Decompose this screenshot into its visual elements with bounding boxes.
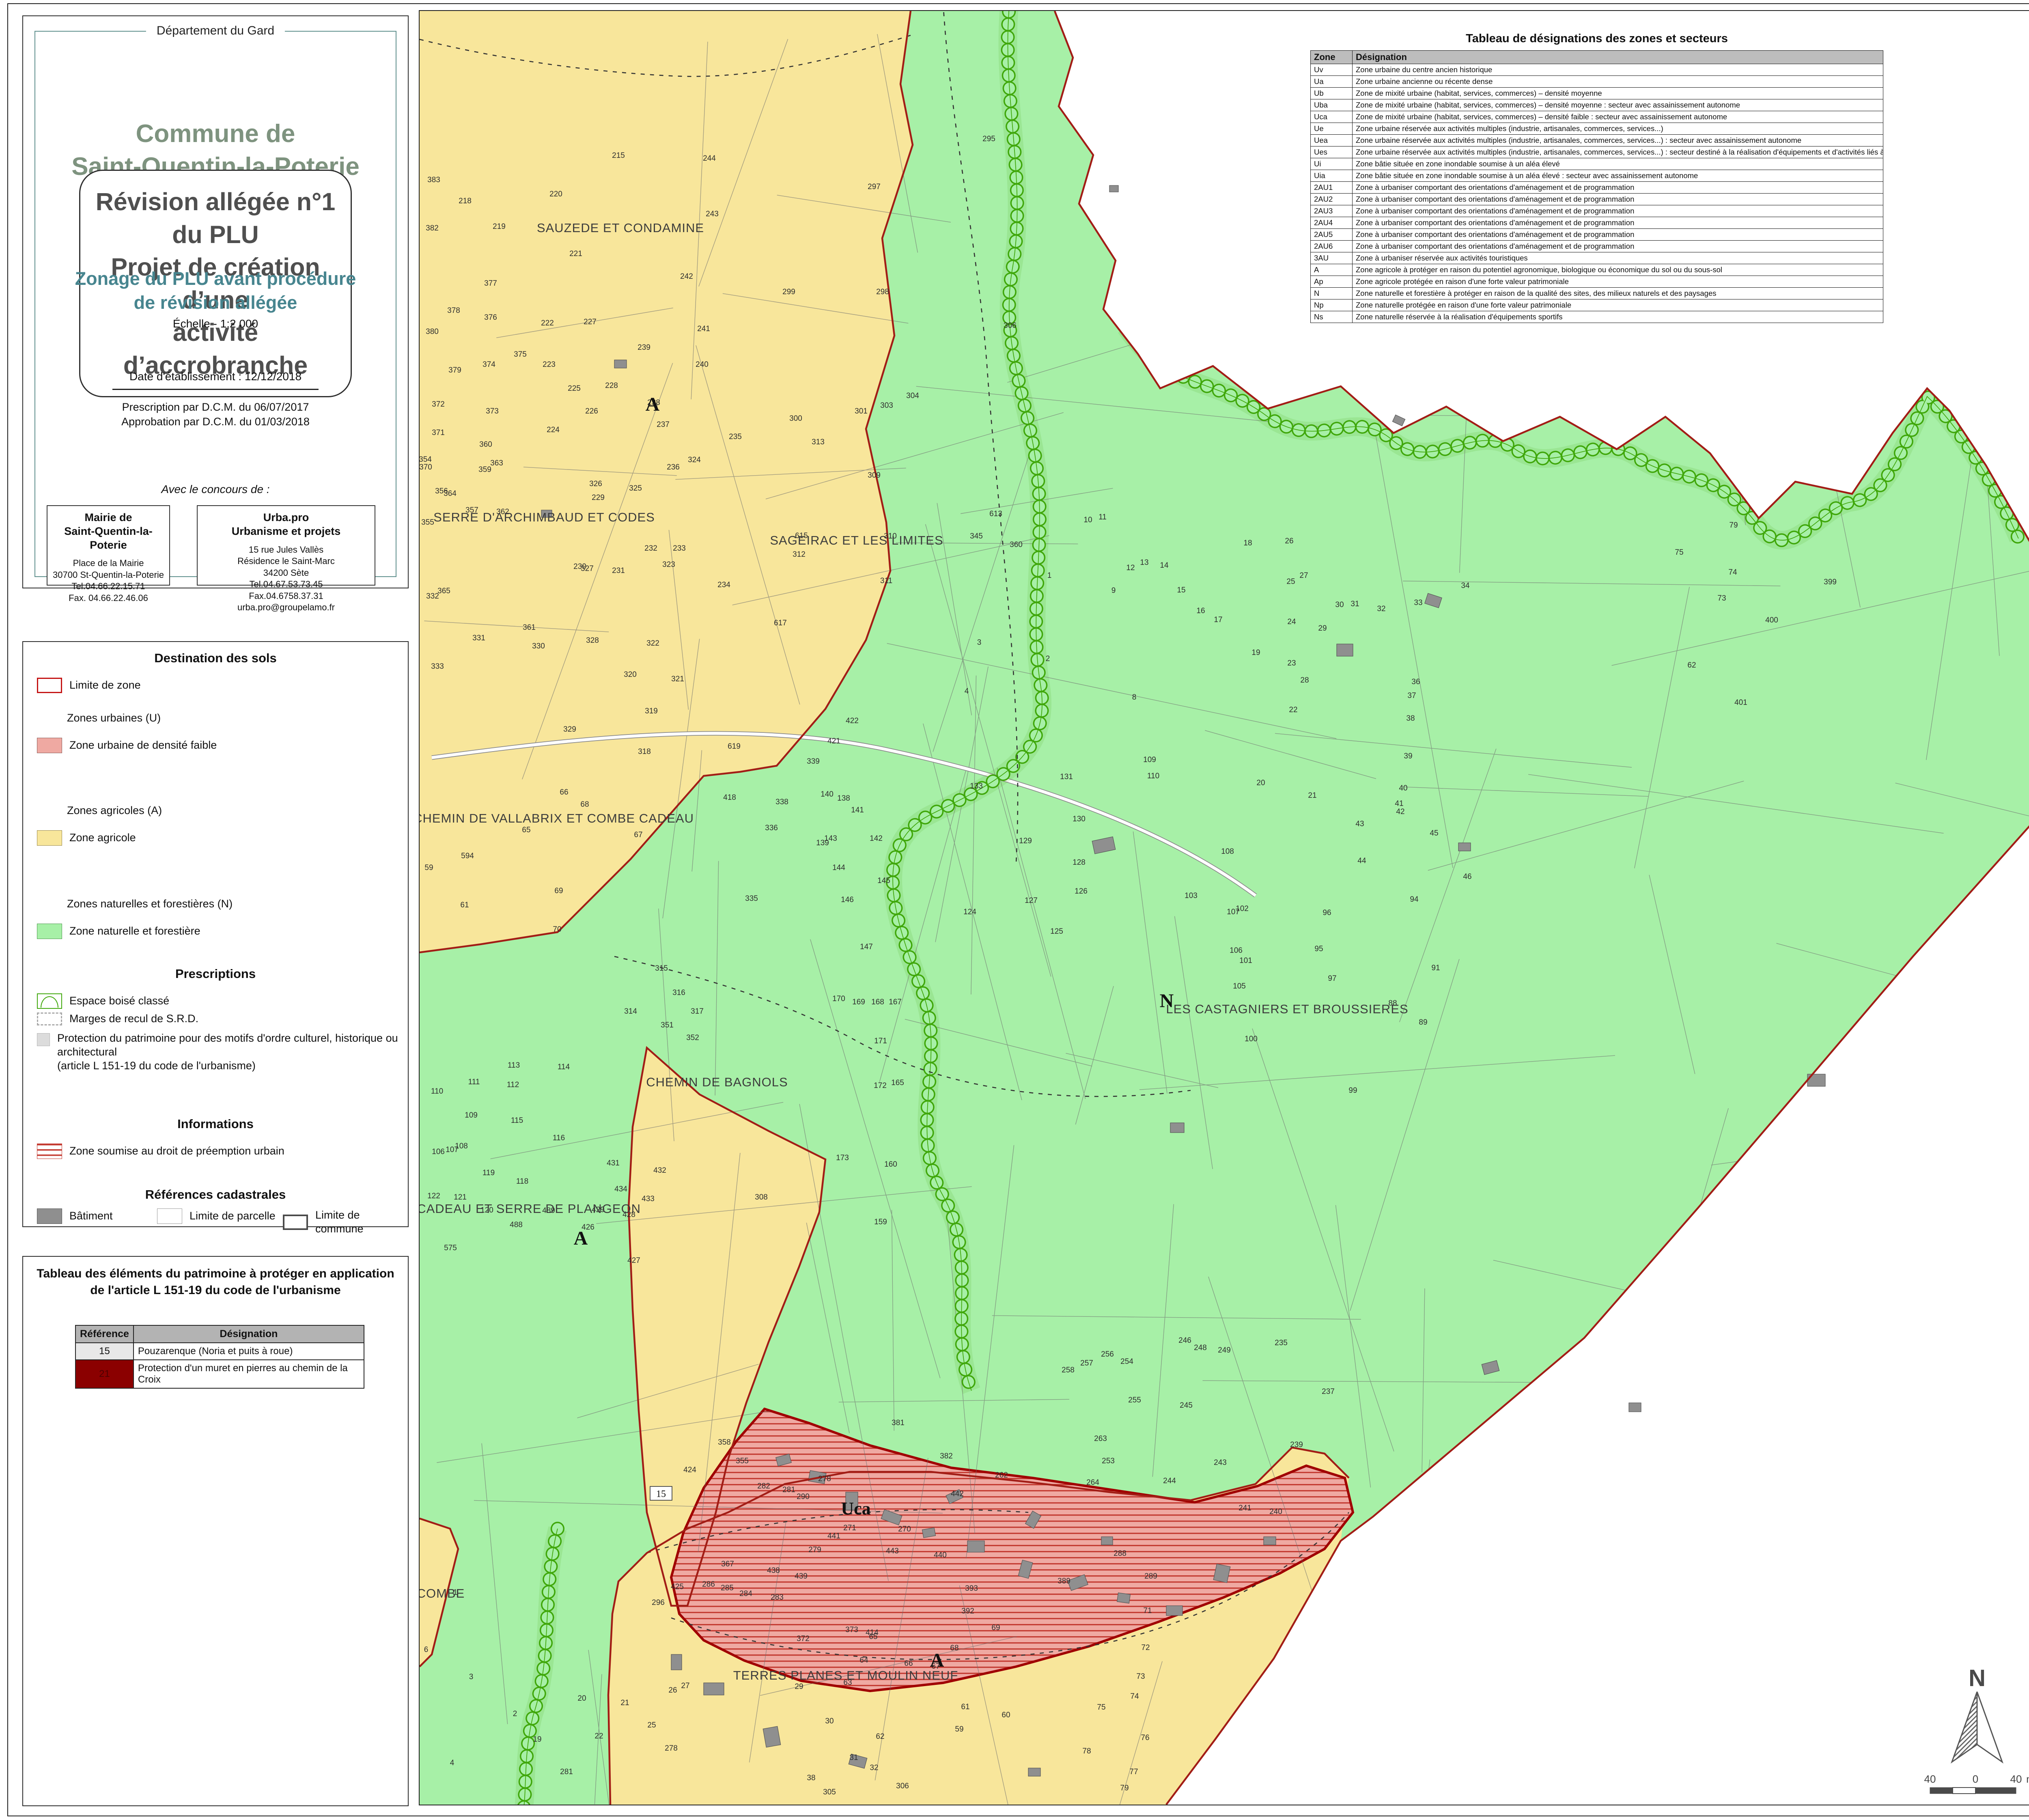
- parcel-label: 306: [896, 1782, 909, 1790]
- legend-item: Marges de recul de S.R.D.: [37, 1012, 400, 1026]
- legend-item-label: Espace boisé classé: [69, 994, 169, 1008]
- parcel-label: 314: [624, 1007, 637, 1016]
- zones-table-title: Tableau de désignations des zones et sec…: [1310, 32, 1883, 45]
- parcel-label: 112: [507, 1081, 519, 1089]
- parcel-label: 432: [653, 1166, 666, 1175]
- zones-table-row: UiZone bâtie située en zone inondable so…: [1311, 158, 1883, 170]
- parcel-label: 25: [1286, 577, 1295, 586]
- urba-address: 15 rue Jules VallèsRésidence le Saint-Ma…: [198, 544, 375, 614]
- parcel-label: 72: [1141, 1643, 1150, 1652]
- parcel-label: 20: [577, 1694, 586, 1703]
- zones-table-header: Désignation: [1353, 51, 1883, 64]
- parcel-label: 299: [782, 288, 795, 296]
- parcel-label: 59: [424, 864, 433, 872]
- zones-table-row: 2AU4Zone à urbaniser comportant des orie…: [1311, 217, 1883, 229]
- parcel-label: 130: [1073, 815, 1086, 823]
- parcel-label: 42: [1396, 808, 1404, 816]
- urba-name: Urba.pro Urbanisme et projets: [198, 511, 375, 538]
- parcel-label: 33: [1414, 599, 1422, 607]
- parcel-label: 25: [647, 1721, 656, 1730]
- parcel-label: 286: [702, 1580, 715, 1589]
- legend-item-label: Limite de zone: [69, 678, 141, 692]
- parcel-label: 281: [560, 1768, 573, 1776]
- parcel-label: 143: [824, 834, 837, 843]
- mairie-box: Mairie de Saint-Quentin-la- Poterie Plac…: [47, 505, 170, 586]
- parcel-label: 229: [592, 493, 605, 502]
- parcel-label: 64: [859, 1656, 868, 1665]
- parc-swatch: [157, 1208, 182, 1224]
- parcel-label: 381: [892, 1419, 905, 1427]
- zones-table: ZoneDésignation UvZone urbaine du centre…: [1310, 50, 1883, 323]
- parcel-label: 279: [808, 1546, 821, 1554]
- zone-designation: Zone urbaine réservée aux activités mult…: [1353, 146, 1883, 158]
- parcel-label: 36: [1411, 678, 1420, 686]
- parcel-label: 380: [426, 327, 439, 336]
- scale-bar-label: m: [2026, 1773, 2029, 1785]
- parcel-label: 298: [876, 288, 889, 296]
- parcel-label: 440: [934, 1551, 947, 1559]
- parcel-label: 316: [672, 989, 685, 997]
- parcel-label: 374: [482, 360, 495, 369]
- parcel-label: 225: [568, 384, 581, 393]
- parcel-label: 62: [876, 1732, 884, 1741]
- parcel-label: 129: [1019, 837, 1032, 845]
- parcel-label: 358: [718, 1438, 731, 1447]
- parcel-label: 31: [849, 1753, 858, 1762]
- parcel-label: 222: [541, 319, 554, 327]
- place-label: LA COMBE: [420, 1586, 465, 1600]
- parcel-label: 2: [513, 1710, 517, 1718]
- informations-title: Informations: [23, 1117, 408, 1131]
- parcel-label: 69: [554, 887, 563, 895]
- address-line: Place de la Mairie: [47, 558, 169, 569]
- parcel-label: 107: [446, 1146, 459, 1154]
- zones-table-row: UeaZone urbaine réservée aux activités m…: [1311, 135, 1883, 146]
- parcel-label: 219: [493, 222, 506, 231]
- legend-item: Zone naturelle et forestière: [37, 924, 400, 939]
- parcel-label: 74: [1130, 1692, 1139, 1701]
- zones-table-row: 2AU1Zone à urbaniser comportant des orie…: [1311, 182, 1883, 194]
- parcel-label: 418: [723, 793, 736, 802]
- scale-bar-label: 0: [1973, 1773, 1978, 1785]
- parcel-label: 226: [585, 407, 598, 416]
- zones-table-row: UiaZone bâtie située en zone inondable s…: [1311, 170, 1883, 182]
- parcel-label: 236: [667, 463, 680, 472]
- parcel-label: 235: [1275, 1339, 1288, 1347]
- zone-code: 2AU1: [1311, 182, 1353, 194]
- parcel-label: 18: [1243, 539, 1252, 547]
- parcel-label: 138: [837, 794, 850, 803]
- parcel-label: 111: [468, 1078, 480, 1086]
- legend-item-label: Zone naturelle et forestière: [69, 924, 200, 938]
- parcel-label: 108: [1221, 847, 1234, 856]
- zone-designation: Zone urbaine du centre ancien historique: [1353, 64, 1883, 76]
- plan-subtitle: Zonage du PLU avant procédure de révisio…: [23, 267, 408, 314]
- parcel-label: 248: [1194, 1344, 1207, 1352]
- parcel-label: 96: [1323, 909, 1331, 917]
- parcel-label: 114: [558, 1063, 570, 1071]
- srd-swatch: [37, 1012, 62, 1025]
- place-label: SERRE D'ARCHIMBAUD ET CODES: [433, 510, 655, 524]
- comm-swatch: [283, 1215, 308, 1230]
- parcel-label: 227: [584, 318, 597, 326]
- parcel-label: 22: [594, 1732, 603, 1740]
- parcel-label: 221: [569, 250, 582, 258]
- parcel-label: 121: [454, 1193, 467, 1202]
- parcel-label: 26: [1285, 537, 1293, 545]
- parcel-label: 338: [775, 798, 788, 806]
- parcel-label: 258: [1062, 1366, 1075, 1374]
- parcel-label: 253: [1102, 1457, 1115, 1465]
- legend-item-label: Limite de commune: [315, 1208, 408, 1236]
- parcel-label: 66: [904, 1659, 913, 1668]
- parcel-label: 431: [607, 1159, 620, 1167]
- parcel-label: 14: [1160, 561, 1169, 570]
- parcel-label: 34: [1461, 582, 1470, 590]
- parcel-label: 355: [421, 518, 434, 527]
- parcel-label: 66: [560, 788, 568, 797]
- parcel-label: 44: [1357, 857, 1366, 865]
- patrimoine-row: 21Protection d'un muret en pierres au ch…: [75, 1360, 364, 1388]
- parcel-label: 373: [486, 407, 499, 416]
- parcel-label: 332: [426, 592, 439, 601]
- parcel-label: 4: [450, 1759, 454, 1767]
- parcel-label: 321: [671, 675, 684, 683]
- parcel-label: 399: [1824, 578, 1837, 586]
- plan-sheet: Département du Gard Commune de Saint-Que…: [0, 0, 2029, 1820]
- zone-code: Uia: [1311, 170, 1353, 182]
- parcel-label: 311: [880, 577, 892, 585]
- parcel-label: 102: [1236, 905, 1249, 913]
- parcel-label: 60: [1002, 1711, 1010, 1719]
- parcel-label: 127: [1025, 896, 1038, 905]
- parcel-label: 38: [807, 1774, 815, 1782]
- parcel-label: 45: [1430, 829, 1438, 838]
- prescriptions-title: Prescriptions: [23, 967, 408, 981]
- parcel-label: 297: [868, 183, 881, 191]
- address-line: 30700 St-Quentin-la-Poterie: [47, 569, 169, 581]
- zones-table-row: 2AU3Zone à urbaniser comportant des orie…: [1311, 205, 1883, 217]
- parcel-label: 37: [1407, 691, 1416, 700]
- parcel-label: 327: [581, 564, 594, 573]
- legend-item: Espace boisé classé: [37, 993, 400, 1009]
- parcel-label: 231: [612, 566, 625, 575]
- place-label: CHEMIN DE BAGNOLS: [646, 1075, 788, 1089]
- urba-box: Urba.pro Urbanisme et projets 15 rue Jul…: [197, 505, 375, 586]
- parcel-label: 97: [1328, 974, 1336, 983]
- legend-group-header: Zones agricoles (A): [67, 804, 162, 817]
- parcel-label: 100: [1245, 1035, 1258, 1043]
- zone-code: Uba: [1311, 99, 1353, 111]
- parcel-label: 306: [1004, 321, 1017, 330]
- parcel-label: 331: [472, 634, 485, 642]
- address-line: Résidence le Saint-Marc: [198, 556, 375, 567]
- parcel-label: 304: [906, 392, 919, 400]
- parcel-label: 295: [982, 135, 995, 143]
- parcel-label: 133: [970, 782, 983, 790]
- parcel-label: 99: [1348, 1086, 1357, 1095]
- parcel-label: 10: [1083, 516, 1092, 524]
- parcel-label: 70: [553, 925, 561, 934]
- parcel-label: 16: [1196, 607, 1205, 615]
- parcel-label: 73: [1717, 594, 1726, 603]
- parcel-label: 376: [484, 313, 497, 322]
- zones-table-row: UaZone urbaine ancienne ou récente dense: [1311, 76, 1883, 88]
- address-line: Tel.04.67.53.73.45: [198, 579, 375, 590]
- parcel-label: 168: [871, 998, 884, 1006]
- parcel-label: 67: [634, 831, 642, 839]
- zone-designation: Zone à urbaniser comportant des orientat…: [1353, 217, 1883, 229]
- zone-code: Uca: [1311, 111, 1353, 123]
- zone-label-A: A: [646, 394, 660, 415]
- parcel-label: 345: [970, 532, 983, 541]
- parcel-label: 290: [797, 1493, 810, 1501]
- legend-group-header: Zones naturelles et forestières (N): [67, 898, 233, 910]
- parcel-label: 76: [1141, 1734, 1149, 1742]
- legend-item: Zone agricole: [37, 830, 400, 846]
- date-line: Date d'établissement : 12/12/2018: [112, 370, 319, 390]
- concours-label: Avec le concours de :: [23, 483, 408, 496]
- parcel-label: 30: [825, 1717, 834, 1725]
- parcel-label: 68: [950, 1644, 958, 1652]
- zones-table-row: ApZone agricole protégée en raison d'une…: [1311, 276, 1883, 288]
- parcel-label: 8: [1132, 693, 1137, 702]
- parcel-label: 24: [1287, 618, 1296, 626]
- parcel-label: 335: [745, 894, 758, 903]
- place-label: TERRES PLANES ET MOULIN NEUF: [733, 1668, 958, 1682]
- parcel-label: 372: [432, 400, 445, 409]
- parcel-label: 165: [891, 1079, 904, 1087]
- parcel-label: 305: [823, 1788, 836, 1796]
- zone-designation: Zone à urbaniser comportant des orientat…: [1353, 241, 1883, 252]
- parcel-label: 242: [680, 272, 693, 281]
- parcel-label: 365: [437, 587, 450, 595]
- parcel-label: 255: [1128, 1396, 1141, 1404]
- parcel-label: 29: [795, 1682, 803, 1691]
- zone-designation: Zone bâtie située en zone inondable soum…: [1353, 158, 1883, 170]
- zones-table-row: NsZone naturelle réservée à la réalisati…: [1311, 311, 1883, 323]
- parcel-label: 169: [852, 998, 865, 1006]
- parcel-label: 79: [1729, 521, 1738, 530]
- parcel-label: 3: [977, 638, 982, 647]
- zones-table-row: 2AU6Zone à urbaniser comportant des orie…: [1311, 241, 1883, 252]
- zone-designation: Zone naturelle réservée à la réalisation…: [1353, 311, 1883, 323]
- parcel-label: 257: [1080, 1359, 1093, 1368]
- parcel-label: 424: [683, 1466, 696, 1474]
- parcel-label: 339: [807, 757, 820, 766]
- parcel-label: 308: [755, 1193, 768, 1202]
- parcel-label: 26: [668, 1686, 677, 1695]
- zone-code: 3AU: [1311, 252, 1353, 264]
- parcel-label: 383: [427, 176, 440, 184]
- parcel-label: 28: [1300, 676, 1309, 685]
- parcel-label: 159: [874, 1218, 887, 1226]
- parcel-label: 115: [511, 1116, 523, 1125]
- parcel-label: 330: [532, 642, 545, 650]
- legend-item: Zone urbaine de densité faible: [37, 738, 400, 753]
- zones-table-wrap: Tableau de désignations des zones et sec…: [1310, 32, 1883, 323]
- parcel-label: 288: [1114, 1549, 1127, 1558]
- parcel-label: 438: [767, 1566, 780, 1575]
- parcel-label: 244: [703, 154, 716, 163]
- parcel-label: 270: [898, 1525, 911, 1534]
- parcel-label: 12: [1126, 564, 1135, 572]
- map-panel: 3832182202152442973822192432212422992983…: [419, 10, 2029, 1805]
- zones-table-row: NZone naturelle et forestière à protéger…: [1311, 288, 1883, 299]
- parcel-label: 283: [771, 1593, 784, 1602]
- parcel-label: 40: [1399, 784, 1407, 793]
- parcel-label: 333: [431, 662, 444, 671]
- parcel-label: 11: [1099, 513, 1107, 521]
- mairie-name: Mairie de Saint-Quentin-la- Poterie: [47, 511, 169, 552]
- zone-designation: Zone urbaine réservée aux activités mult…: [1353, 123, 1883, 135]
- parcel-label: 575: [444, 1244, 457, 1252]
- parcel-label: 336: [765, 824, 778, 832]
- parcel-label: 75: [1097, 1703, 1105, 1712]
- parcel-label: 351: [661, 1021, 674, 1030]
- parcel-label: 140: [821, 790, 834, 799]
- parcel-label: 9: [1111, 586, 1116, 595]
- patrimoine-title: Tableau des éléments du patrimoine à pro…: [31, 1266, 400, 1299]
- parcel-label: 326: [589, 480, 602, 488]
- parcel-label: 400: [1765, 616, 1778, 625]
- parcel-label: 128: [1073, 858, 1086, 867]
- place-label: SAUZEDE ET CONDAMINE: [537, 221, 704, 235]
- ebc-swatch: [37, 993, 62, 1009]
- parcel-label: 223: [543, 360, 556, 369]
- zone-designation: Zone à urbaniser comportant des orientat…: [1353, 182, 1883, 194]
- legend-group-header: Zones urbaines (U): [67, 712, 161, 724]
- legend-item: Protection du patrimoine pour des motifs…: [37, 1032, 400, 1073]
- legend-item-label: Limite de parcelle: [190, 1209, 276, 1223]
- patrimoine-ref: 21: [75, 1360, 134, 1388]
- parcel-label: 144: [832, 864, 845, 872]
- zone-label-A: A: [930, 1650, 944, 1671]
- parcel-label: 300: [789, 414, 802, 423]
- parcel-label: 4: [965, 687, 969, 696]
- parcel-label: 78: [1082, 1747, 1091, 1755]
- parcel-label: 233: [673, 544, 686, 553]
- parcel-label: 215: [612, 151, 625, 160]
- parcel-label: 361: [523, 623, 536, 632]
- parcel-label: 17: [1214, 616, 1222, 624]
- parcel-label: 378: [447, 306, 460, 315]
- parcel-label: 2: [1046, 655, 1050, 663]
- patrimoine-table: RéférenceDésignation 15Pouzarenque (Nori…: [75, 1325, 364, 1389]
- parcel-label: 27: [681, 1682, 689, 1690]
- parcel-label: 325: [629, 484, 642, 493]
- address-line: Fax.04.6758.37.31: [198, 590, 375, 602]
- zone-code: Np: [1311, 299, 1353, 311]
- parcel-label: 315: [655, 964, 668, 973]
- parcel-label: 145: [877, 877, 890, 885]
- parcel-label: 95: [1314, 945, 1323, 953]
- address-line: Tel.04.66.22.15.71: [47, 581, 169, 592]
- parcel-label: 75: [1675, 548, 1683, 557]
- zone-code: Ue: [1311, 123, 1353, 135]
- zones-table-row: UeZone urbaine réservée aux activités mu…: [1311, 123, 1883, 135]
- parcel-label: 113: [508, 1061, 520, 1070]
- cadastre-title: Références cadastrales: [23, 1187, 408, 1202]
- parcel-label: 359: [478, 465, 491, 474]
- zones-table-row: UbZone de mixité urbaine (habitat, servi…: [1311, 88, 1883, 99]
- parcel-label: 285: [721, 1584, 734, 1592]
- legend-item: Bâtiment: [37, 1208, 113, 1224]
- parcel-label: 32: [870, 1764, 878, 1772]
- patrimoine-header: Référence: [75, 1325, 134, 1343]
- parcel-label: 69: [991, 1624, 1000, 1632]
- legend-panel: Destination des solsLimite de zoneZones …: [22, 641, 409, 1227]
- parcel-label: 46: [1463, 872, 1471, 881]
- parcel-label: 244: [1163, 1477, 1176, 1485]
- parcel-label: 122: [427, 1192, 440, 1200]
- zone-code: 2AU2: [1311, 194, 1353, 205]
- zone-label-A: A: [574, 1228, 588, 1249]
- zone-designation: Zone de mixité urbaine (habitat, service…: [1353, 99, 1883, 111]
- parcel-label: 318: [638, 747, 651, 756]
- parcel-label: 433: [642, 1195, 655, 1203]
- prescription-line: Prescription par D.C.M. du 06/07/2017: [23, 401, 408, 414]
- parcel-label: 303: [880, 401, 893, 410]
- zone-designation: Zone à urbaniser comportant des orientat…: [1353, 194, 1883, 205]
- parcel-label: 328: [586, 636, 599, 645]
- zone-designation: Zone bâtie située en zone inondable soum…: [1353, 170, 1883, 182]
- parcel-label: 278: [818, 1475, 831, 1483]
- parcel-label: 1: [1047, 571, 1052, 580]
- parcel-label: 235: [729, 433, 742, 441]
- parcel-label: 73: [1136, 1672, 1145, 1681]
- parcel-label: 371: [432, 429, 445, 437]
- legend-item-label: Protection du patrimoine pour des motifs…: [57, 1032, 400, 1073]
- parcel-label: 284: [739, 1590, 752, 1598]
- bat-swatch: [37, 1208, 62, 1224]
- parcel-label: 147: [860, 943, 873, 951]
- zone-code: 2AU6: [1311, 241, 1353, 252]
- parcel-label: 271: [843, 1524, 856, 1532]
- parcel-label: 324: [688, 456, 701, 464]
- parcel-label: 375: [514, 350, 527, 359]
- parcel-label: 372: [797, 1635, 810, 1643]
- zones-table-row: 3AUZone à urbaniser réservée aux activit…: [1311, 252, 1883, 264]
- parcel-label: 594: [461, 852, 474, 860]
- zone-code: A: [1311, 264, 1353, 276]
- scale-bar-label: 40: [2010, 1773, 2022, 1785]
- parcel-label: 301: [855, 407, 868, 416]
- parcel-label: 59: [955, 1725, 963, 1734]
- parcel-label: 61: [961, 1703, 969, 1711]
- parcel-label: 392: [961, 1607, 974, 1615]
- parcel-label: 382: [940, 1452, 953, 1460]
- address-line: urba.pro@groupelamo.fr: [198, 602, 375, 614]
- zone-code: Ns: [1311, 311, 1353, 323]
- agr-swatch: [37, 830, 62, 846]
- parcel-label: 289: [1144, 1572, 1157, 1581]
- parcel-label: 218: [459, 197, 472, 205]
- parcel-label: 79: [1120, 1784, 1129, 1792]
- zones-table-header: Zone: [1311, 51, 1353, 64]
- pat-swatch: [37, 1033, 50, 1046]
- parcel-label: 22: [1289, 706, 1297, 714]
- parcel-label: 239: [1290, 1441, 1303, 1449]
- parcel-label: 241: [1239, 1504, 1251, 1512]
- zone-designation: Zone naturelle et forestière à protéger …: [1353, 288, 1883, 299]
- legend-item: Limite de commune: [283, 1208, 408, 1236]
- parcel-label: 262: [995, 1471, 1008, 1480]
- parcel-label: 237: [657, 420, 670, 429]
- parcel-label: 443: [886, 1547, 899, 1555]
- zone-code: Ues: [1311, 146, 1353, 158]
- parcel-label: 296: [652, 1598, 665, 1607]
